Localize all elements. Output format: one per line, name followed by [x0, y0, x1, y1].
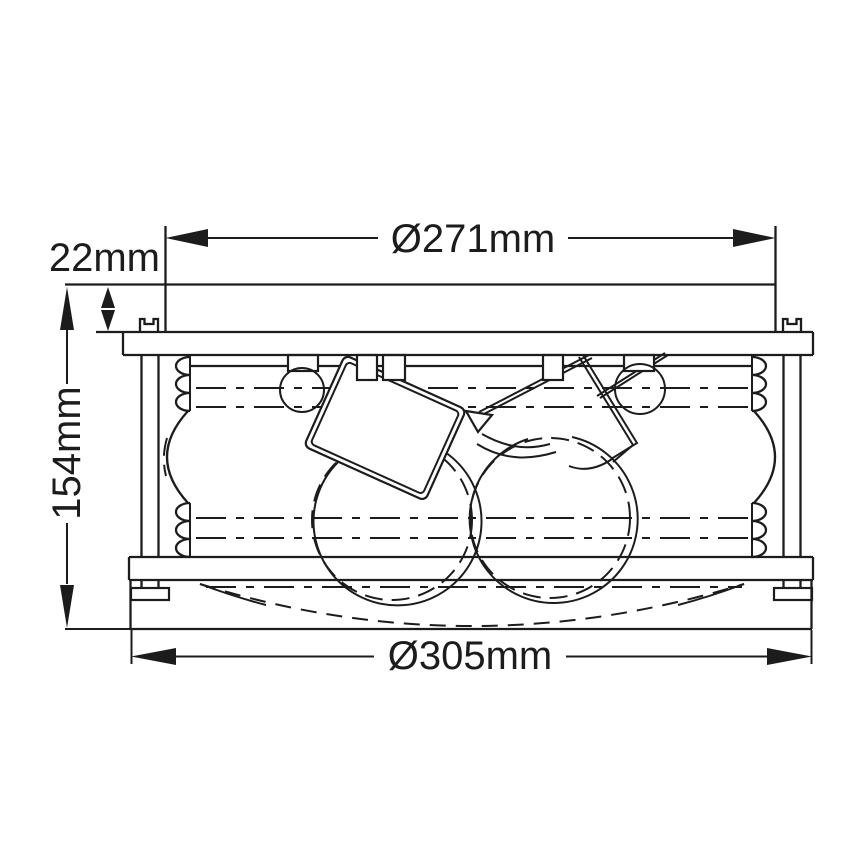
finial-foot-left [131, 588, 169, 600]
technical-drawing-page: Ø271mm 22mm 154mm Ø305mm [0, 0, 868, 868]
dimension-bottom-diameter: Ø305mm [131, 630, 812, 678]
bulb-right-outline [470, 437, 638, 603]
socket-collar-right [624, 355, 654, 371]
fixture-elevation-drawing: Ø271mm 22mm 154mm Ø305mm [0, 0, 868, 868]
scalloped-column-right [752, 356, 775, 557]
dim-label-overall-height: 154mm [45, 386, 89, 519]
dim-arrow-down [101, 310, 115, 331]
screw-tab-right [783, 319, 801, 332]
socket-tab [543, 355, 563, 380]
screw-tab-left [140, 319, 158, 332]
top-flange [96, 319, 813, 355]
dim-arrow-down [60, 585, 74, 628]
dim-label-top-diameter: Ø271mm [391, 217, 556, 261]
socket-tab [383, 355, 405, 380]
socket-tab [357, 355, 377, 380]
dim-arrow-left [131, 648, 176, 665]
socket-knob-left [280, 368, 324, 412]
finial-foot-right [774, 588, 812, 600]
dim-arrow-left [166, 229, 209, 247]
dim-arrow-right [767, 648, 812, 665]
glass-diffuser [131, 580, 813, 629]
dim-arrow-up [60, 287, 74, 330]
dim-arrow-up [101, 287, 115, 308]
dimension-overall-height: 154mm [45, 287, 131, 629]
dim-label-canopy-height: 22mm [49, 236, 160, 280]
dim-arrow-right [733, 229, 776, 247]
bracket-clamp [466, 411, 492, 432]
scalloped-column-left [167, 356, 190, 557]
dim-label-bottom-diameter: Ø305mm [388, 634, 553, 678]
dimension-top-diameter: Ø271mm [166, 217, 776, 261]
